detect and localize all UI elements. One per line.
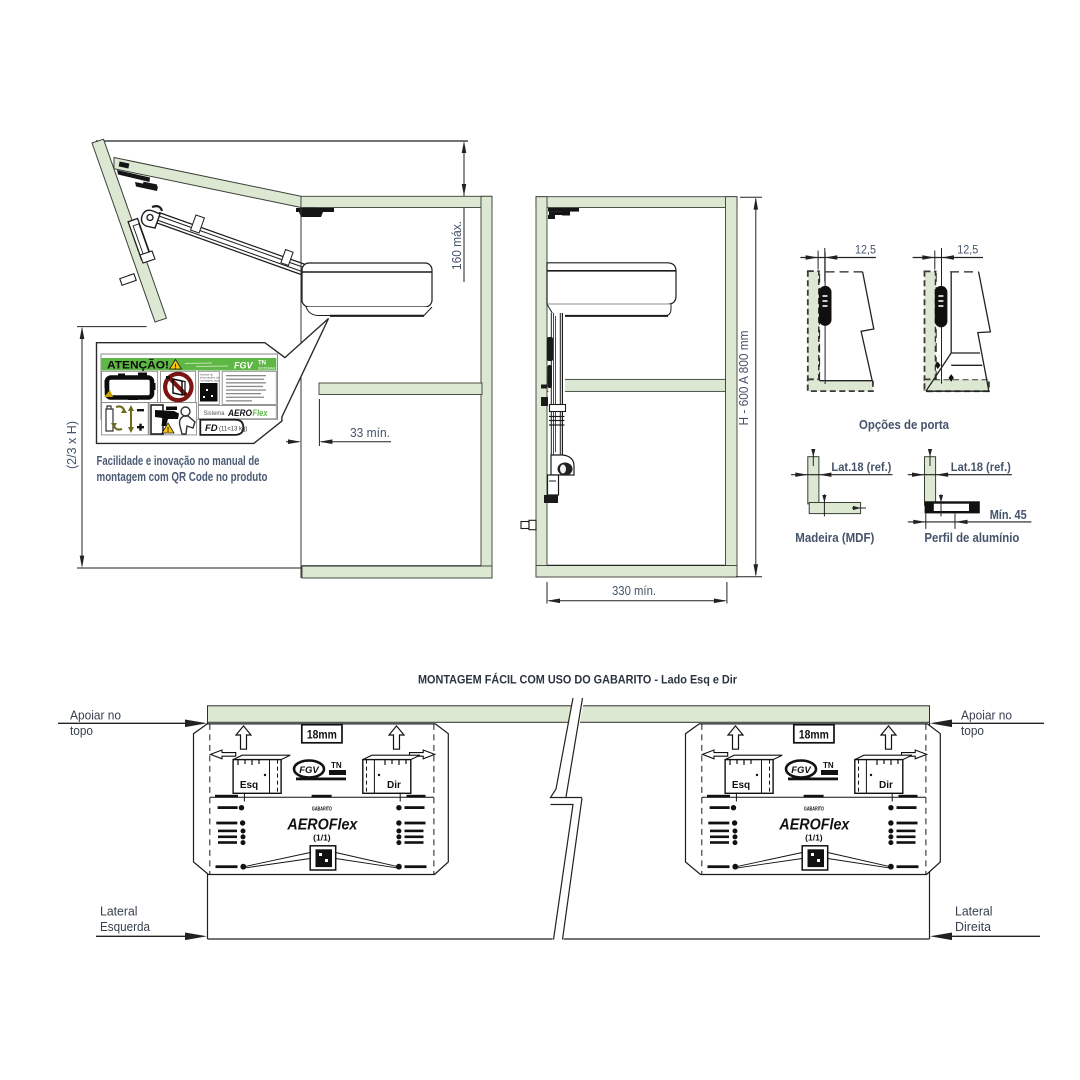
svg-text:H - 600 A 800 mm: H - 600 A 800 mm [737, 331, 751, 426]
svg-text:Facilidade e inovação no manua: Facilidade e inovação no manual de [97, 453, 260, 468]
svg-text:GABARITO: GABARITO [312, 807, 332, 813]
svg-text:Apoiar no: Apoiar no [70, 709, 121, 723]
svg-text:montagem com QR Code no produt: montagem com QR Code no produto [97, 469, 268, 484]
svg-text:montagem aqui: montagem aqui [200, 379, 220, 383]
svg-text:FD: FD [205, 423, 218, 434]
svg-text:Esquerda: Esquerda [100, 920, 150, 934]
svg-text:Apoiar no: Apoiar no [961, 709, 1012, 723]
svg-text:Opções de porta: Opções de porta [859, 417, 950, 432]
svg-text:Direita: Direita [955, 920, 991, 934]
svg-text:33 mín.: 33 mín. [350, 426, 390, 440]
svg-text:MONTAGEM FÁCIL COM USO DO GABA: MONTAGEM FÁCIL COM USO DO GABARITO - Lad… [418, 674, 737, 687]
svg-text:Esq: Esq [240, 780, 258, 791]
svg-text:FGV: FGV [234, 361, 253, 371]
svg-text:FGV: FGV [299, 765, 319, 776]
svg-text:160 máx.: 160 máx. [450, 221, 464, 270]
svg-text:Lat.18 (ref.): Lat.18 (ref.) [951, 460, 1011, 474]
svg-text:!: ! [167, 427, 169, 434]
svg-text:TN: TN [331, 761, 342, 770]
svg-text:Dir: Dir [387, 780, 401, 791]
svg-text:Flex: Flex [253, 408, 269, 418]
svg-text:SISTEMAS: SISTEMAS [258, 367, 276, 371]
svg-text:Lateral: Lateral [955, 905, 993, 919]
svg-text:(1/1): (1/1) [313, 833, 331, 843]
svg-text:Lateral: Lateral [100, 905, 138, 919]
svg-text:(11<13 kg): (11<13 kg) [219, 427, 247, 433]
svg-text:AEROFlex: AEROFlex [286, 817, 358, 834]
svg-text:Madeira (MDF): Madeira (MDF) [795, 531, 874, 545]
svg-text:330 mín.: 330 mín. [612, 584, 656, 598]
svg-text:ATENÇÃO!: ATENÇÃO! [107, 358, 169, 371]
svg-text:AERO: AERO [227, 408, 252, 418]
svg-text:12,5: 12,5 [957, 243, 978, 257]
svg-text:topo: topo [70, 724, 93, 738]
svg-text:18mm: 18mm [307, 730, 337, 742]
svg-text:topo: topo [961, 724, 984, 738]
svg-text:(2/3 x H): (2/3 x H) [65, 421, 79, 469]
svg-text:Sistema: Sistema [204, 410, 225, 417]
svg-text:Mín. 45: Mín. 45 [990, 508, 1027, 522]
svg-text:!: ! [174, 363, 176, 370]
svg-text:Lat.18 (ref.): Lat.18 (ref.) [831, 460, 891, 474]
svg-text:12,5: 12,5 [855, 243, 876, 257]
svg-text:Perfil de alumínio: Perfil de alumínio [924, 531, 1019, 545]
